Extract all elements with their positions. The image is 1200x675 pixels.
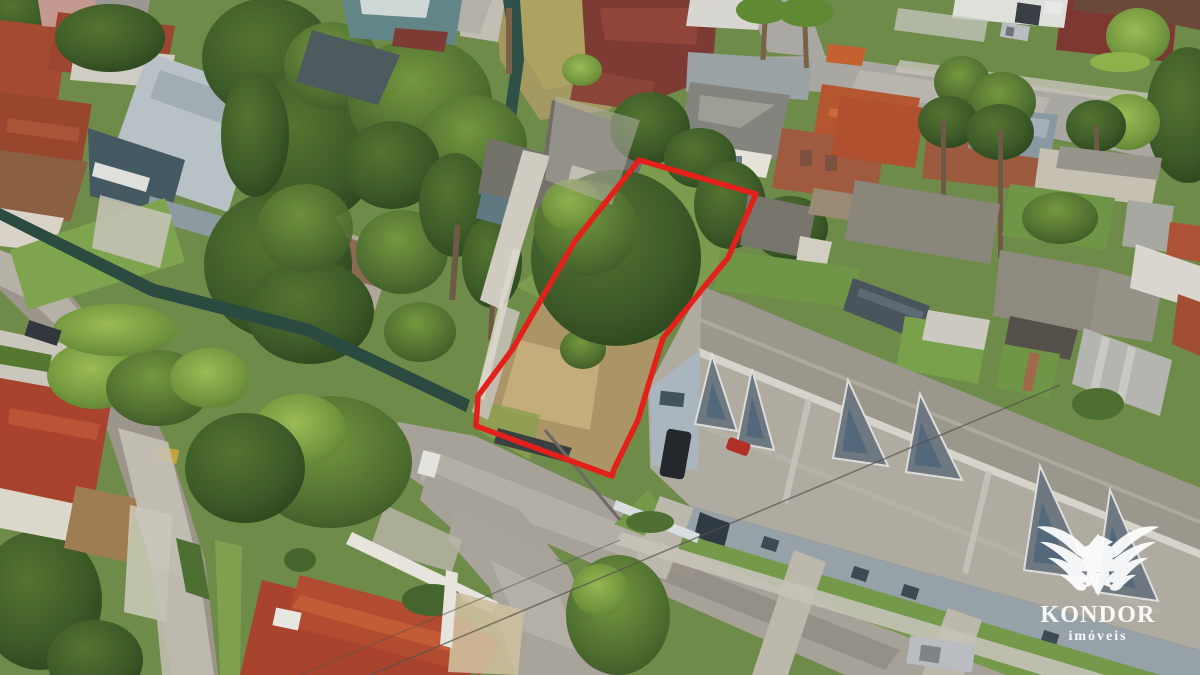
svg-text:imóveis: imóveis — [1068, 629, 1127, 644]
svg-text:KONDOR: KONDOR — [1040, 602, 1155, 628]
